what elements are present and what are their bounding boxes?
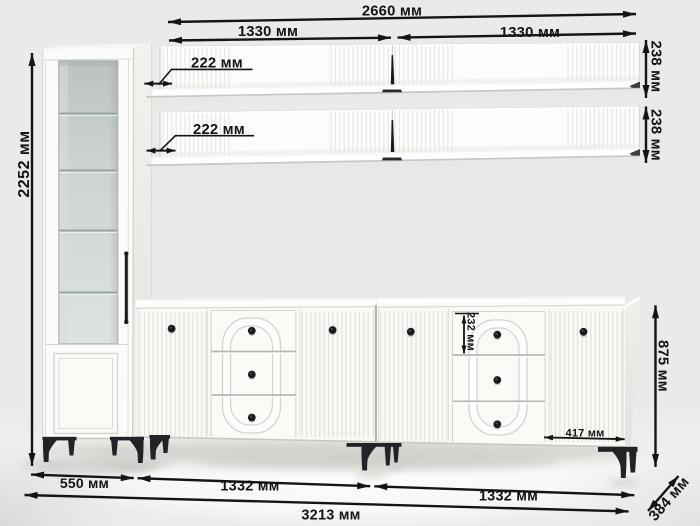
svg-text:232 мм: 232 мм	[464, 312, 476, 351]
svg-text:1332 мм: 1332 мм	[479, 489, 538, 505]
svg-text:1330 мм: 1330 мм	[500, 25, 560, 41]
svg-text:222 мм: 222 мм	[193, 122, 245, 138]
svg-text:3213 мм: 3213 мм	[301, 508, 360, 524]
svg-text:238 мм: 238 мм	[648, 41, 664, 93]
svg-text:2252 мм: 2252 мм	[16, 130, 33, 197]
svg-text:1330 мм: 1330 мм	[238, 24, 298, 40]
svg-text:550 мм: 550 мм	[60, 475, 109, 491]
svg-text:417 мм: 417 мм	[566, 427, 605, 439]
svg-text:238 мм: 238 мм	[648, 109, 664, 161]
svg-text:1332 мм: 1332 мм	[220, 479, 279, 495]
svg-text:2660 мм: 2660 мм	[362, 4, 422, 20]
svg-text:222 мм: 222 мм	[191, 56, 243, 72]
svg-text:875 мм: 875 мм	[655, 340, 671, 392]
